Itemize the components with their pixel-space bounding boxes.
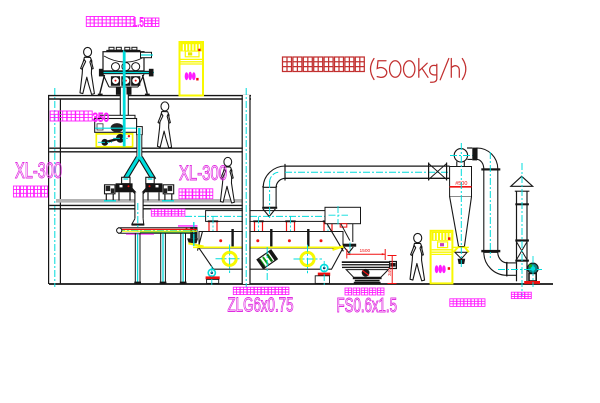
svg-text:FS0.6x1.5: FS0.6x1.5 bbox=[337, 295, 398, 317]
svg-text:ZLG6x0.75: ZLG6x0.75 bbox=[228, 295, 294, 317]
svg-text:340: 340 bbox=[387, 268, 393, 276]
svg-text:XL-300: XL-300 bbox=[179, 162, 227, 185]
svg-text:XL-300: XL-300 bbox=[15, 158, 62, 183]
svg-text:1500: 1500 bbox=[360, 248, 371, 254]
svg-text:350: 350 bbox=[93, 112, 110, 124]
svg-text:1.5: 1.5 bbox=[133, 15, 145, 30]
